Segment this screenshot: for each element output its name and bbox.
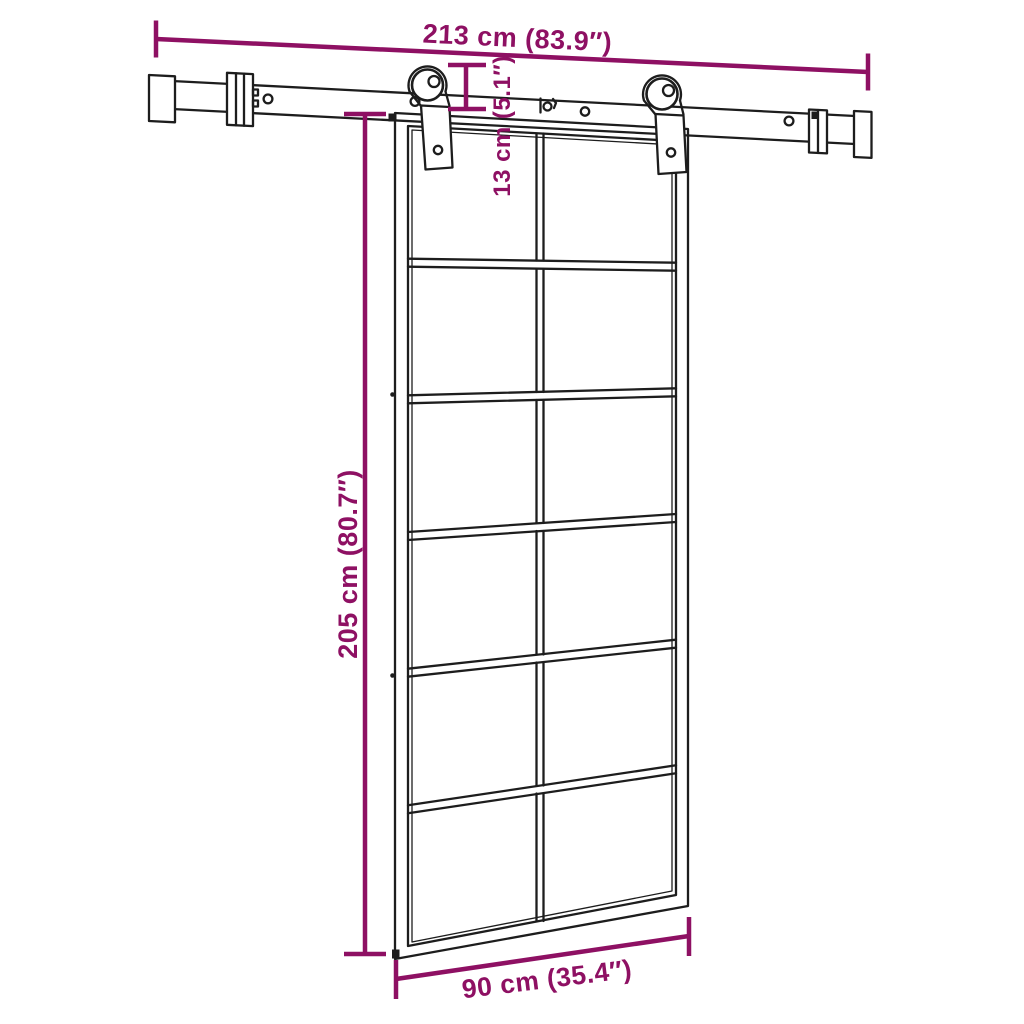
corner-bracket-bottom-left bbox=[392, 950, 400, 959]
roller-hanger-right bbox=[643, 75, 687, 174]
diagram-canvas: 213 cm (83.9″) 205 cm (80.7″) 13 cm (5.1… bbox=[0, 0, 1024, 1024]
rail-mounting-hole bbox=[785, 117, 794, 126]
rail-connector-left bbox=[227, 73, 258, 126]
rail-mounting-hole bbox=[581, 107, 589, 115]
rail-connector-right bbox=[809, 110, 827, 154]
hanger-height-label: 13 cm (5.1″) bbox=[489, 55, 516, 197]
door bbox=[389, 113, 689, 959]
dimension-labels: 213 cm (83.9″) 205 cm (80.7″) 13 cm (5.1… bbox=[333, 19, 634, 1005]
strap-bolt bbox=[667, 148, 675, 156]
rail-end-cap-right bbox=[854, 111, 872, 158]
strap-bolt bbox=[434, 146, 442, 154]
corner-bracket-top-left bbox=[389, 114, 397, 122]
wheel-hub-bolt bbox=[663, 85, 674, 96]
door-height-label: 205 cm (80.7″) bbox=[333, 469, 363, 659]
center-mullion bbox=[537, 134, 544, 922]
door-width-label: 90 cm (35.4″) bbox=[460, 954, 633, 1005]
rail-mounting-hole bbox=[264, 95, 273, 104]
line-drawing bbox=[149, 66, 872, 959]
wheel-hub-bolt bbox=[429, 76, 440, 87]
dimension-diagram-image: 213 cm (83.9″) 205 cm (80.7″) 13 cm (5.1… bbox=[0, 0, 1024, 1024]
frame-screw-dot bbox=[390, 392, 395, 397]
dim-hanger-height-line bbox=[448, 65, 486, 109]
door-inner-frame bbox=[408, 126, 676, 946]
roller-hanger-left bbox=[409, 66, 453, 169]
door-outer-frame bbox=[395, 113, 688, 959]
frame-screw-dot bbox=[390, 673, 395, 678]
glass-dividers bbox=[408, 259, 676, 814]
rail-end-cap-left bbox=[149, 75, 175, 122]
